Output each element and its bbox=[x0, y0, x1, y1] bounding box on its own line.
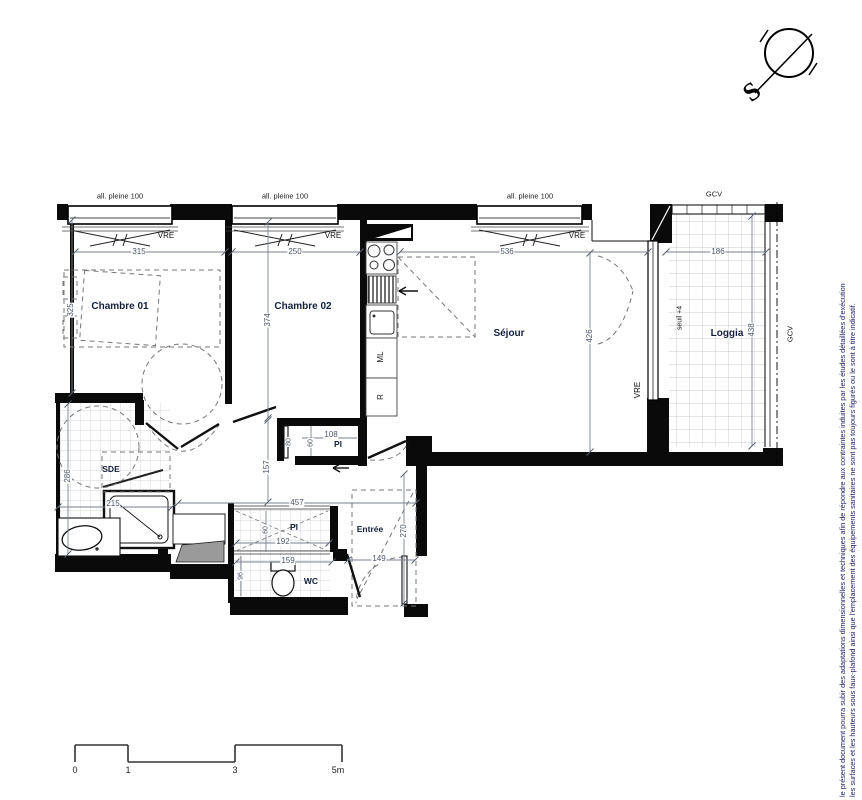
technical-duct bbox=[173, 514, 225, 562]
vre-label-bay: VRE bbox=[634, 382, 642, 398]
vre-label-sejour: VRE bbox=[569, 232, 585, 240]
allege-label-chambre02: all. pleine 100 bbox=[262, 192, 308, 200]
vre-label-chambre02: VRE bbox=[325, 232, 341, 240]
window-chambre01 bbox=[68, 206, 172, 224]
allege-label-chambre01: all. pleine 100 bbox=[97, 192, 143, 200]
dim-corridor-width: 457 bbox=[289, 499, 304, 507]
disclaimer-line-2: les surfaces et les hauteurs sous faux-p… bbox=[848, 9, 858, 797]
floor-plan-page: all. pleine 100 all. pleine 100 all. ple… bbox=[0, 0, 862, 800]
dim-placard-door: 80 bbox=[286, 437, 293, 447]
scale-bar bbox=[75, 745, 342, 762]
dim-wc-width: 159 bbox=[280, 557, 295, 565]
kitchen-hood bbox=[365, 224, 413, 241]
room-label-wc: WC bbox=[304, 577, 318, 586]
washing-machine-label: ML bbox=[377, 351, 385, 362]
dim-entree-width: 149 bbox=[371, 555, 386, 563]
window-chambre02 bbox=[232, 206, 338, 224]
dim-chambre02-width: 250 bbox=[287, 248, 302, 256]
dim-chambre02-depth: 374 bbox=[264, 312, 272, 327]
scale-tick-3: 3 bbox=[232, 766, 237, 775]
gcv-label-right: GCV bbox=[786, 326, 794, 342]
dim-placard-entree-depth: 60 bbox=[263, 525, 270, 535]
kitchen-access-arrow bbox=[399, 287, 418, 295]
room-label-placard-center: Pl bbox=[334, 440, 342, 449]
disclaimer-text: le présent document pourra subir des ada… bbox=[838, 9, 858, 797]
kitchen-drainer bbox=[368, 276, 396, 303]
dim-corridor-depth: 157 bbox=[263, 459, 271, 474]
room-label-placard-entree: Pl bbox=[290, 523, 298, 532]
washbasin bbox=[58, 518, 120, 556]
kitchen-sink bbox=[366, 305, 397, 338]
disclaimer-line-1: le présent document pourra subir des ada… bbox=[838, 9, 848, 797]
vre-label-chambre01: VRE bbox=[158, 232, 174, 240]
allege-label-sejour: all. pleine 100 bbox=[507, 192, 553, 200]
dim-entree-depth: 270 bbox=[400, 523, 408, 538]
wc-fixtures bbox=[271, 562, 295, 596]
dim-placard-width: 108 bbox=[323, 431, 338, 439]
kitchen-stove bbox=[366, 242, 397, 274]
dim-sde-depth: 286 bbox=[64, 468, 72, 483]
room-label-loggia: Loggia bbox=[711, 329, 744, 339]
dim-placard-depth: 60 bbox=[308, 438, 315, 448]
dim-loggia-width: 186 bbox=[710, 248, 725, 256]
window-sejour bbox=[477, 206, 582, 224]
scale-tick-0: 0 bbox=[72, 766, 77, 775]
room-label-sde: SDE bbox=[102, 465, 119, 474]
dim-loggia-depth: 438 bbox=[748, 322, 756, 337]
compass-icon bbox=[754, 29, 817, 94]
room-label-sejour: Séjour bbox=[493, 329, 524, 339]
dim-sejour-width: 536 bbox=[499, 248, 514, 256]
seuil-label: seuil +4 bbox=[677, 306, 684, 330]
kitchen-block bbox=[365, 224, 418, 416]
scale-tick-5m: 5m bbox=[332, 766, 345, 775]
room-label-chambre02: Chambre 02 bbox=[274, 302, 331, 312]
gcv-label-top: GCV bbox=[706, 190, 722, 198]
dim-chambre01-width: 315 bbox=[131, 248, 146, 256]
sejour-corner-lines bbox=[592, 220, 651, 241]
dim-placard-entree-width: 192 bbox=[275, 538, 290, 546]
scale-tick-1: 1 bbox=[125, 766, 130, 775]
room-label-chambre01: Chambre 01 bbox=[91, 302, 148, 312]
toilet-bowl bbox=[272, 570, 294, 596]
bay-window-sejour-loggia bbox=[648, 241, 658, 400]
dim-sde-width: 215 bbox=[105, 500, 120, 508]
dim-sejour-depth: 426 bbox=[586, 328, 594, 343]
placard-access-arrow bbox=[333, 464, 349, 472]
room-label-entree: Entrée bbox=[357, 525, 383, 534]
dim-chambre01-depth: 325 bbox=[67, 302, 75, 317]
floor-plan-drawing bbox=[0, 0, 862, 800]
dim-wc-depth: 96 bbox=[238, 571, 245, 581]
fridge-label: R bbox=[377, 394, 385, 400]
